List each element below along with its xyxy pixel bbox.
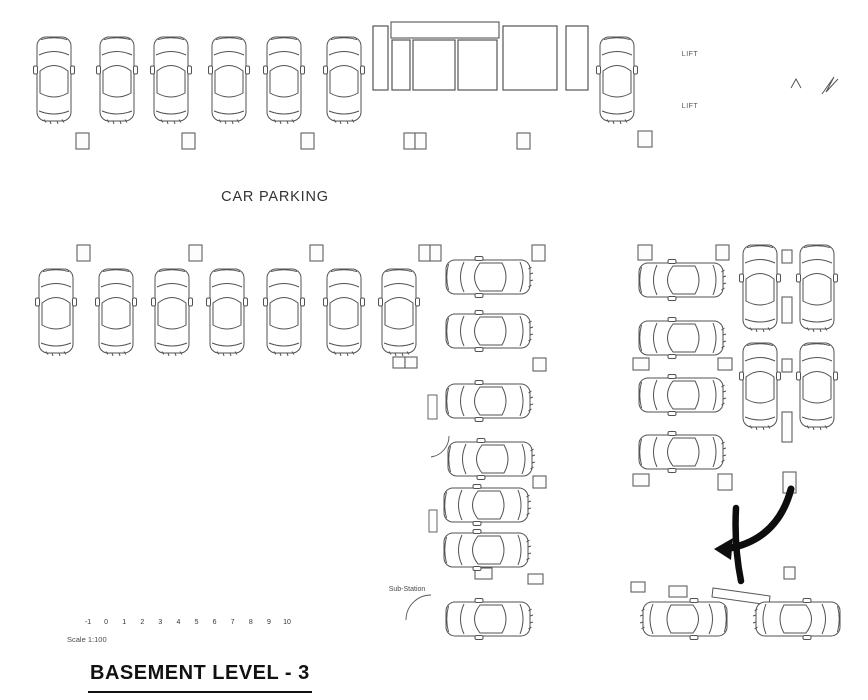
car-icon	[446, 311, 533, 352]
pillar	[782, 250, 792, 263]
car-icon	[797, 245, 838, 332]
arrow-curve	[731, 489, 791, 548]
pillar	[533, 358, 546, 371]
lift-upper-label: LIFT	[668, 51, 712, 58]
scale-tick-label: 8	[243, 619, 259, 626]
car-icon	[36, 269, 77, 356]
pillar	[528, 574, 543, 584]
drawing-title: BASEMENT LEVEL - 3	[90, 662, 310, 685]
car-icon	[209, 37, 250, 124]
service-room	[373, 26, 388, 90]
service-room	[503, 26, 557, 90]
pillar	[638, 131, 652, 147]
car-icon	[448, 439, 535, 480]
scale-tick-label: 0	[98, 619, 114, 626]
pillar	[638, 245, 652, 260]
pillar	[182, 133, 195, 149]
pillar	[669, 586, 687, 597]
lift-lower-label: LIFT	[668, 103, 712, 110]
pillar	[784, 567, 795, 579]
scale-tick-label: -1	[80, 619, 96, 626]
car-icon	[151, 37, 192, 124]
car-icon	[740, 343, 781, 430]
car-icon	[639, 318, 726, 359]
floor-plan-drawing	[0, 0, 868, 700]
door-jamb	[428, 395, 437, 419]
pillar	[631, 582, 645, 592]
car-icon	[797, 343, 838, 430]
car-icon	[597, 37, 638, 124]
car-icon	[96, 269, 137, 356]
pillar	[782, 359, 792, 372]
car-icon	[264, 269, 305, 356]
pillar	[633, 358, 649, 370]
pillar	[517, 133, 530, 149]
stair-arrow	[791, 79, 801, 88]
pillar	[718, 474, 732, 490]
car-icon	[207, 269, 248, 356]
scale-tick-label: 7	[225, 619, 241, 626]
pillar	[310, 245, 323, 261]
scale-tick-label: 10	[279, 619, 295, 626]
service-room	[392, 40, 410, 90]
pillar	[404, 133, 415, 149]
car-icon	[324, 37, 365, 124]
car-icon	[97, 37, 138, 124]
pillar	[301, 133, 314, 149]
pillar	[415, 133, 426, 149]
car-icon	[753, 599, 840, 640]
pillar	[716, 245, 729, 260]
scale-note-label: Scale 1:100	[67, 635, 107, 644]
car-icon	[639, 260, 726, 301]
pillar	[430, 245, 441, 261]
service-room	[458, 40, 497, 90]
pillar	[532, 245, 545, 261]
car-icon	[34, 37, 75, 124]
car-icon	[640, 599, 727, 640]
car-icon	[444, 485, 531, 526]
pillar	[782, 297, 792, 323]
scale-tick-label: 1	[116, 619, 132, 626]
car-icon	[152, 269, 193, 356]
pillar	[405, 357, 417, 368]
pillar	[782, 412, 792, 442]
scale-tick-label: 2	[134, 619, 150, 626]
door-jamb	[429, 510, 437, 532]
scale-tick-label: 9	[261, 619, 277, 626]
car-icon	[639, 432, 726, 473]
title-underline	[88, 691, 312, 693]
car-icon	[740, 245, 781, 332]
car-icon	[379, 269, 420, 356]
service-room	[566, 26, 588, 90]
car-icon	[264, 37, 305, 124]
pillar	[76, 133, 89, 149]
pillar	[419, 245, 430, 261]
car-parking-label: CAR PARKING	[180, 189, 370, 205]
pillar	[533, 476, 546, 488]
drive-direction-arrow	[714, 489, 791, 581]
floor-plan-page: CAR PARKING LIFT LIFT Sub-Station -10123…	[0, 0, 868, 700]
substation-label: Sub-Station	[381, 586, 433, 593]
pillar	[718, 358, 732, 370]
arrow-head	[714, 538, 733, 560]
car-icon	[639, 375, 726, 416]
pillar	[633, 474, 649, 486]
pillar	[189, 245, 202, 261]
car-icon	[324, 269, 365, 356]
pillar	[77, 245, 90, 261]
car-icon	[444, 530, 531, 571]
door-swing-arc	[406, 595, 431, 620]
pillar	[393, 357, 405, 368]
shaft-box	[391, 22, 499, 38]
scale-tick-label: 3	[152, 619, 168, 626]
car-icon	[446, 599, 533, 640]
door-swing-arc	[431, 436, 449, 457]
scale-tick-label: 5	[189, 619, 205, 626]
scale-tick-label: 4	[170, 619, 186, 626]
car-icon	[446, 381, 533, 422]
car-icon	[446, 257, 533, 298]
scale-tick-label: 6	[207, 619, 223, 626]
stair-arrow	[822, 77, 838, 94]
service-room	[413, 40, 455, 90]
